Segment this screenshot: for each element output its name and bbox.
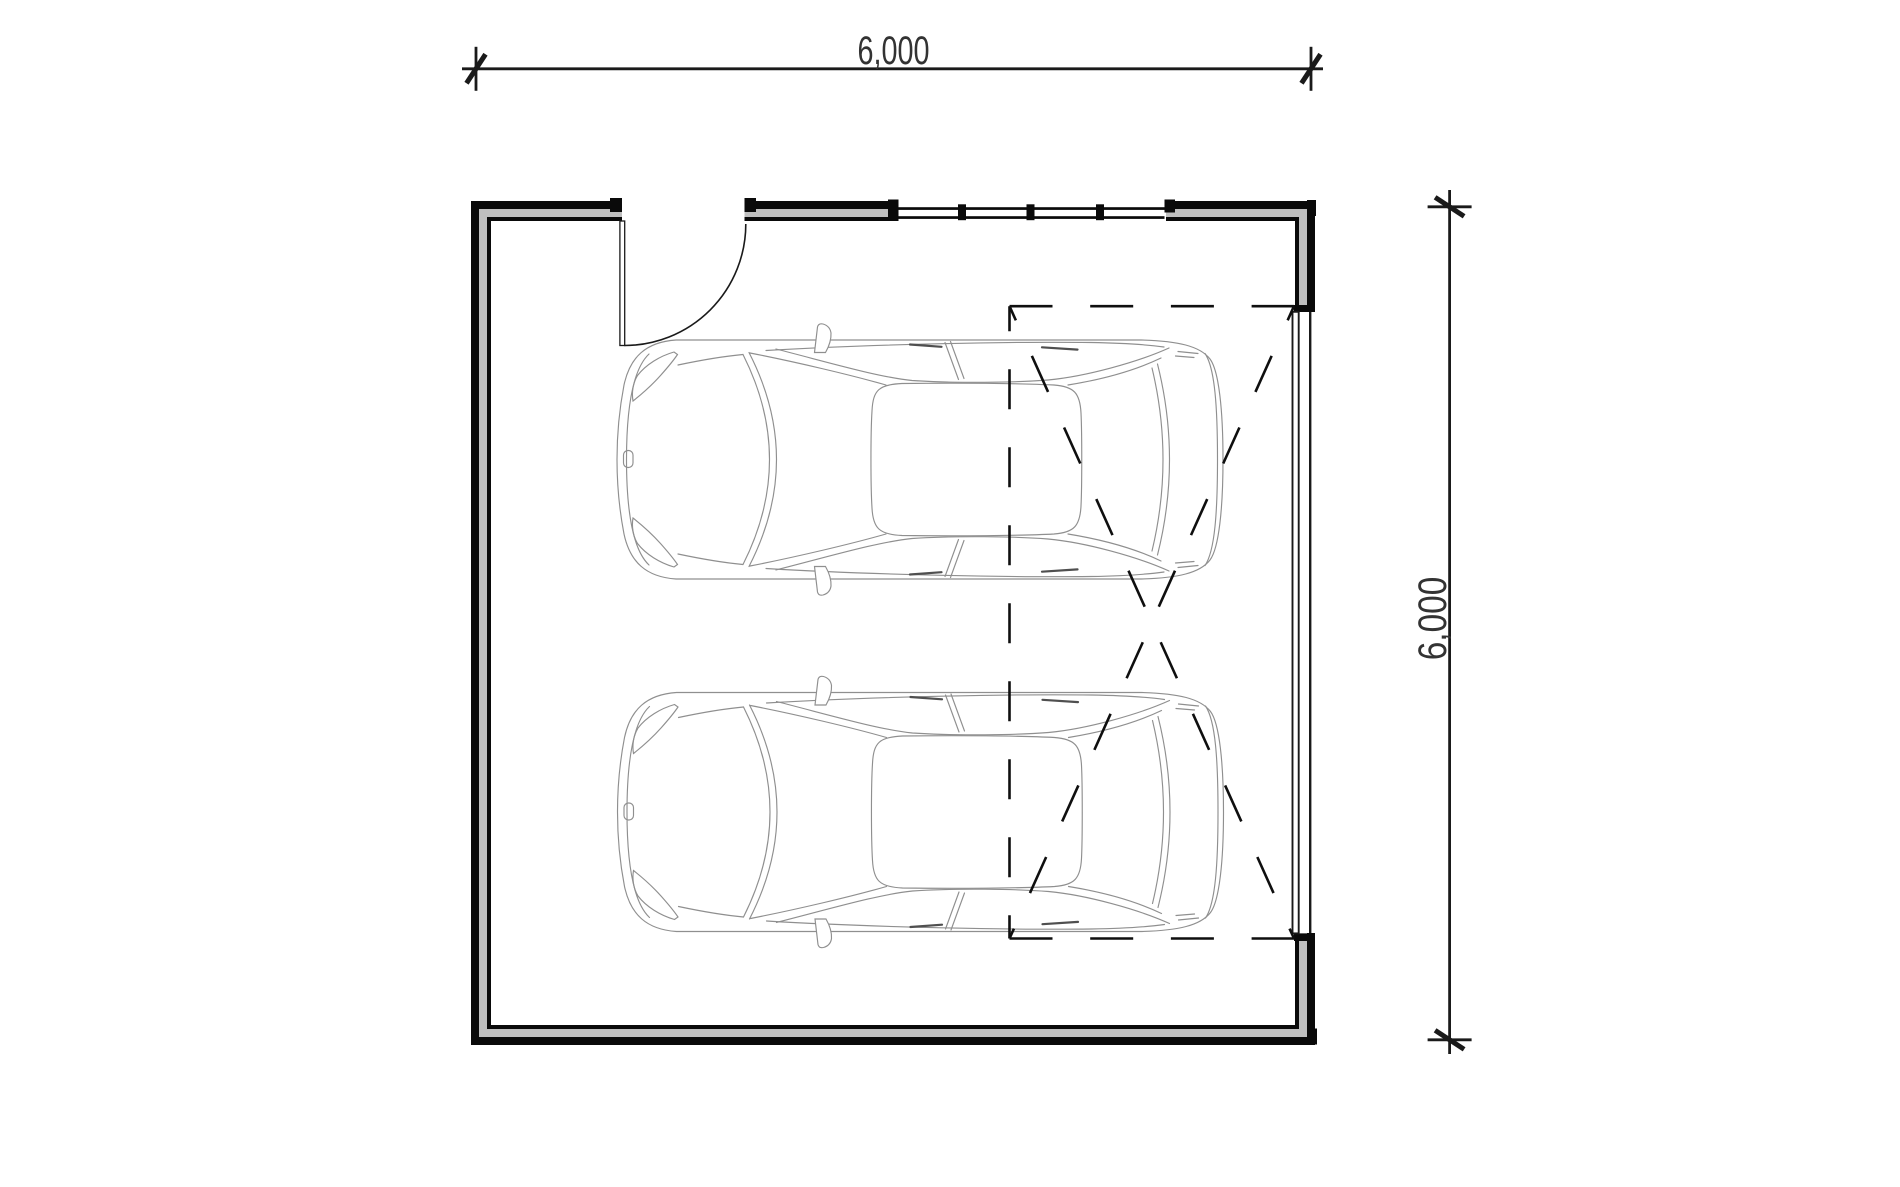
svg-text:6,000: 6,000 (857, 28, 929, 73)
svg-text:6,000: 6,000 (1410, 577, 1455, 661)
